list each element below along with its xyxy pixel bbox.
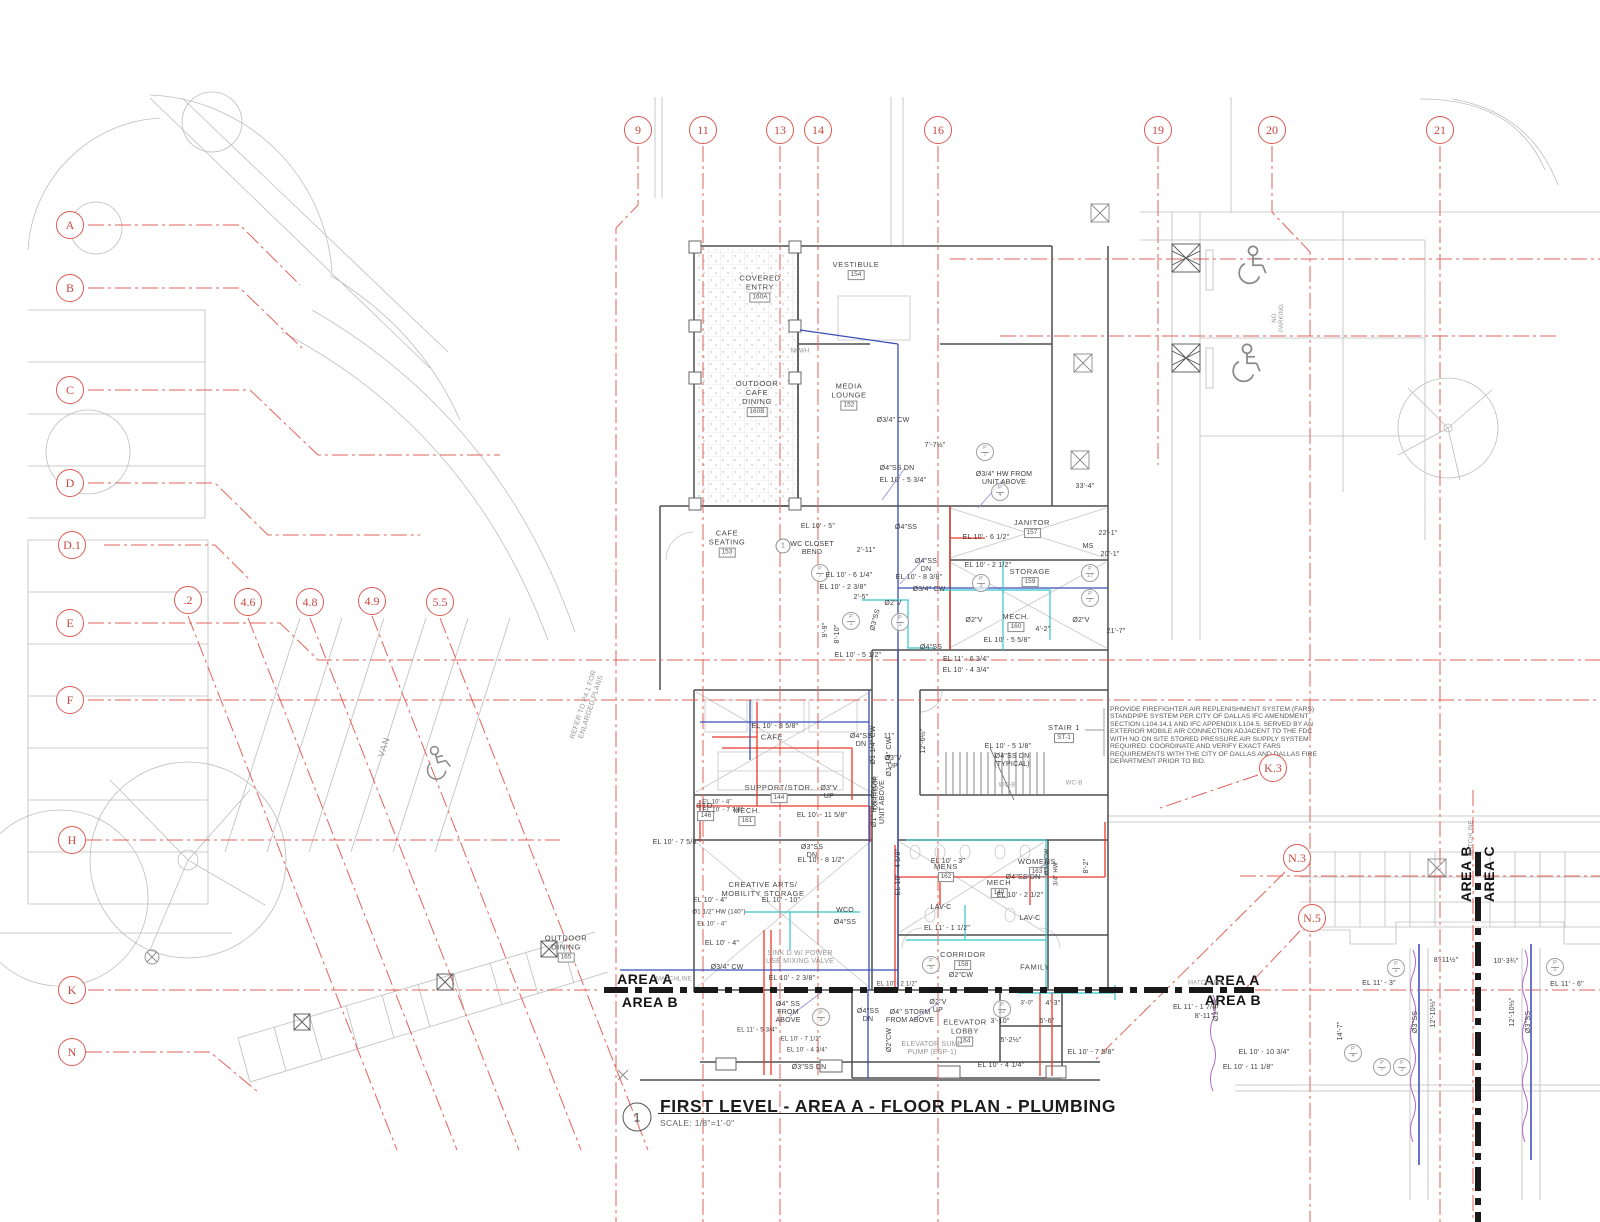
plan-annotation: 3'-0": [1021, 1001, 1034, 1008]
room-number-tag: 157: [1024, 528, 1041, 538]
room-name: COVERED ENTRY: [739, 274, 780, 292]
plan-annotation: 33'-4": [1075, 483, 1094, 491]
plan-annotation: 2'-11": [857, 547, 876, 555]
plan-annotation: Ø3"SS: [1412, 1011, 1420, 1033]
room-number-tag: 160: [1008, 622, 1025, 632]
room-name: SUPPORT/STOR.: [745, 783, 814, 792]
plan-annotation: Ø3/4" CW: [711, 964, 744, 972]
grid-bubble-19: 19: [1144, 116, 1172, 144]
plan-annotation: MS: [1083, 543, 1094, 551]
plumbing-fixture-tag: P1: [891, 613, 909, 631]
room-number-tag: 160A: [749, 293, 770, 303]
room-name: CAFE SEATING: [709, 529, 746, 547]
plan-annotation: EL 10' - 4 5/8": [895, 849, 903, 896]
plan-annotation: 14'-7": [1337, 1021, 1345, 1040]
plan-annotation: NFWH: [791, 349, 810, 356]
plan-annotation: Ø2"CW: [949, 972, 974, 980]
detail-number-bubble: 1: [623, 1103, 652, 1132]
plumbing-fixture-tag: P2: [1081, 589, 1099, 607]
room-label: OUTDOOR DINING165: [545, 934, 588, 963]
room-label: MEDIA LOUNGE152: [831, 382, 866, 411]
room-name: CORRIDOR: [940, 950, 986, 959]
plumbing-fixture-tag: P3: [1393, 1058, 1411, 1076]
plan-annotation: VAN: [376, 735, 392, 758]
labels-layer: AREA A AREA B AREA A AREA B AREA B AREA …: [0, 0, 1600, 1222]
keynote-bubble: 1: [776, 539, 791, 554]
plan-annotation: Ø3"SS: [869, 608, 883, 631]
plan-annotation: 4'-3": [1046, 1000, 1061, 1008]
plan-annotation: EL 11' - 1 1/2": [924, 925, 970, 933]
room-label: JANITOR157: [1014, 518, 1050, 538]
plan-annotation: Ø3/4"CW: [1045, 849, 1052, 876]
room-number-tag: 165: [558, 953, 575, 963]
plan-annotation: EL 10' - 4 3/4": [943, 667, 990, 675]
plumbing-fixture-tag: P7: [1373, 1058, 1391, 1076]
plan-annotation: 22'-1": [1098, 530, 1117, 538]
plan-annotation: EL 10' - 10": [762, 897, 800, 905]
room-name: MEDIA LOUNGE: [831, 382, 866, 400]
room-name: OUTDOOR CAFE DINING: [736, 379, 779, 406]
plan-annotation: 12'-10½": [1430, 998, 1438, 1027]
plan-annotation: 7'-7½": [925, 442, 946, 450]
grid-bubble-9: 9: [624, 116, 652, 144]
plan-annotation: 4'-2": [1036, 626, 1051, 634]
grid-bubble-D.1: D.1: [58, 531, 86, 559]
plan-annotation: 20'-1": [1100, 551, 1119, 559]
grid-bubble-20: 20: [1258, 116, 1286, 144]
plan-annotation: 6'-6": [1040, 1018, 1055, 1026]
plan-annotation: Ø3"SS: [1525, 1011, 1533, 1033]
plan-annotation: Ø3"SS DN: [792, 1064, 827, 1072]
area-marker-left-bottom: AREA B: [622, 994, 678, 1010]
room-name: MECH.: [1002, 612, 1029, 621]
plan-annotation: Ø2"V: [884, 600, 901, 608]
sheet-scale: SCALE: 1/8"=1'-0": [660, 1118, 734, 1128]
title-underline: [658, 1113, 1062, 1114]
plan-annotation: 8'-2": [1083, 859, 1091, 874]
plumbing-fixture-tag: P2: [1546, 958, 1564, 976]
plan-annotation: Ø3"V UP: [820, 785, 837, 801]
room-name: STORAGE: [1010, 567, 1051, 576]
plan-annotation: Ø4"SS DN: [915, 558, 937, 574]
plan-annotation: Ø2"V: [965, 617, 982, 625]
plan-annotation: EL 10' - 7 7/8": [703, 808, 743, 815]
plumbing-fixture-tag: P9: [812, 1008, 830, 1026]
grid-bubble-K: K: [58, 976, 86, 1004]
plan-annotation: 12'-6½": [920, 728, 928, 753]
plan-annotation: REFER TO P4.1 FOR ENLARGED PLANS: [569, 669, 606, 742]
plan-annotation: 3/4" HW: [1054, 862, 1061, 886]
room-label: CREATIVE ARTS/ MOBILITY STORAGE: [721, 880, 804, 898]
plan-annotation: MATCHLINE: [1188, 981, 1224, 988]
plan-annotation: 10'-3¾": [1493, 958, 1518, 966]
plan-annotation: EL 10' - 4": [697, 922, 727, 929]
plan-annotation: WCO: [836, 907, 854, 915]
grid-bubble-N: N: [58, 1038, 86, 1066]
plumbing-fixture-tag: P2: [1387, 959, 1405, 977]
plan-annotation: EL 10' - 10 3/4": [1239, 1049, 1290, 1057]
plan-annotation: Ø4" STORM FROM ABOVE: [886, 1009, 934, 1025]
plan-annotation: LAV-C: [1020, 915, 1041, 923]
plumbing-fixture-tag: P5: [922, 956, 940, 974]
plan-annotation: WC-B: [999, 783, 1016, 790]
plan-annotation: EL 10' - 5 5/8": [984, 637, 1031, 645]
plan-annotation: WC-B: [1066, 781, 1083, 788]
plan-annotation: EL 10' - 4 3/4": [787, 1048, 827, 1055]
room-number-tag: 159: [1022, 577, 1039, 587]
fixture-tag-text: 17: [1087, 574, 1093, 580]
grid-bubble-N.5: N.5: [1298, 904, 1326, 932]
plan-annotation: EL 10' - 2 3/8": [769, 975, 816, 983]
fixture-tag-text: 7: [1380, 1068, 1383, 1074]
plan-annotation: Ø4"SS DN: [1006, 874, 1041, 882]
grid-bubble-16: 16: [924, 116, 952, 144]
fixture-tag-text: 4: [1351, 1054, 1354, 1060]
plan-annotation: EL 11' - 3": [1362, 980, 1396, 988]
fixture-tag-text: 4: [998, 493, 1001, 499]
fixture-tag-text: 7: [818, 574, 821, 580]
plan-annotation: Ø4"SS DN: [880, 465, 915, 473]
room-name: CREATIVE ARTS/ MOBILITY STORAGE: [721, 880, 804, 898]
plan-annotation: 8'-11½": [1434, 957, 1459, 965]
plan-annotation: CORRIDOR: [874, 776, 881, 810]
plan-annotation: EL 10' - 11 5/8": [797, 812, 847, 820]
room-name: ELEVATOR LOBBY: [943, 1018, 987, 1036]
room-label: STORAGE159: [1010, 567, 1051, 587]
room-name: FAMILY: [1020, 963, 1050, 972]
plan-annotation: EL 10' - 6 1/4": [826, 572, 873, 580]
grid-bubble-4.8: 4.8: [296, 588, 324, 616]
room-name: JANITOR: [1014, 518, 1050, 527]
plan-annotation: EL 10' - 5 1/8": [985, 743, 1032, 751]
plan-annotation: Ø3"SS: [1213, 999, 1221, 1021]
plan-annotation: EL 10' - 7 1/2": [781, 1037, 821, 1044]
plan-annotation: EL 10' - 4": [702, 800, 732, 807]
room-number-tag: 154: [848, 270, 865, 280]
plan-annotation: LAV-C: [931, 904, 952, 912]
plan-annotation: EL 10' - 8 5/8": [752, 723, 799, 731]
room-number-tag: 158: [955, 960, 972, 970]
room-name: VESTIBULE: [833, 260, 880, 269]
fixture-tag-text: 9: [819, 1018, 822, 1024]
room-number-tag: 161: [739, 816, 756, 826]
plan-annotation: MATCHLINE: [1469, 820, 1476, 856]
room-label: COVERED ENTRY160A: [739, 274, 780, 303]
plan-annotation: EL 10' - 2 1/2": [965, 562, 1012, 570]
plan-annotation: EL 10' - 4": [705, 940, 739, 948]
plan-annotation: 5'-2½": [1001, 1037, 1022, 1045]
grid-bubble-H: H: [58, 826, 86, 854]
room-label: FAMILY: [1020, 963, 1050, 972]
room-name: CAFE: [761, 733, 783, 742]
plan-annotation: EL 10' - 2 1/2": [997, 892, 1044, 900]
fixture-tag-text: 2: [1088, 599, 1091, 605]
grid-bubble-21: 21: [1426, 116, 1454, 144]
plan-annotation: EL 10' - 4 1/4": [978, 1062, 1025, 1070]
plan-annotation: 9'-9": [822, 623, 830, 638]
room-number-tag: 144: [771, 793, 788, 803]
room-name: OUTDOOR DINING: [545, 934, 588, 952]
grid-bubble-N.3: N.3: [1283, 844, 1311, 872]
plan-annotation: Ø1 1/2" HW (140°): [692, 910, 745, 917]
plan-annotation: EL 11' - 6": [1550, 981, 1584, 989]
plan-annotation: EL 10' - 5 1/2": [835, 652, 882, 660]
plan-annotation: 21'-7": [1106, 628, 1125, 636]
grid-bubble-K.3: K.3: [1259, 754, 1287, 782]
plan-annotation: Ø4"SS: [834, 919, 856, 927]
room-label: VESTIBULE154: [833, 260, 880, 280]
plan-annotation: Ø2"V: [1072, 617, 1089, 625]
plan-annotation: EL 11' - 6 3/4": [943, 656, 989, 664]
plan-annotation: Ø1 1/4" CW: [870, 725, 878, 764]
room-label: CORRIDOR158: [940, 950, 986, 970]
plumbing-fixture-tag: P3: [972, 574, 990, 592]
plan-annotation: MATCHLINE: [656, 977, 692, 984]
plan-annotation: EL 10' - 7 5/8": [653, 839, 700, 847]
plan-annotation: Ø4"SS DN: [857, 1008, 879, 1024]
fixture-tag-text: 3: [1400, 1068, 1403, 1074]
plan-annotation: EL 10' - 7 5/8": [1068, 1049, 1115, 1057]
grid-bubble-F: F: [56, 686, 84, 714]
plan-annotation: Ø4"SS DN (TYPICAL): [994, 753, 1030, 769]
fixture-tag-text: 2: [1394, 969, 1397, 975]
area-marker-vertical-c: AREA C: [1481, 846, 1497, 902]
plumbing-fixture-tag: P7: [976, 443, 994, 461]
grid-bubble-E: E: [56, 609, 84, 637]
plan-annotation: EL 10' - 5 3/4": [880, 477, 927, 485]
room-number-tag: 152: [841, 401, 858, 411]
grid-bubble-D: D: [56, 469, 84, 497]
floor-plan-sheet: AREA A AREA B AREA A AREA B AREA B AREA …: [0, 0, 1600, 1222]
plan-annotation: 3'-10": [990, 1018, 1009, 1026]
plan-annotation: EL 10' - 6 1/2": [963, 534, 1010, 542]
fixture-tag-text: 2: [1553, 968, 1556, 974]
plumbing-fixture-tag: P1: [842, 612, 860, 630]
fars-note: PROVIDE FIREFIGHTER AIR REPLENISHMENT SY…: [1110, 706, 1318, 766]
plan-annotation: EL 10' - 5": [801, 523, 835, 531]
plan-annotation: 8'-10": [834, 624, 842, 643]
grid-bubble-A: A: [56, 211, 84, 239]
plan-annotation: NO PARKING: [1272, 304, 1286, 332]
plan-annotation: Ø1 1/4" CW: [886, 737, 894, 776]
plan-annotation: EL 11' - 5 3/4": [737, 1028, 777, 1035]
fixture-tag-text: 3: [979, 584, 982, 590]
plan-annotation: 8'-11": [1195, 1013, 1214, 1021]
fixture-tag-text: 1: [898, 623, 901, 629]
grid-bubble-14: 14: [804, 116, 832, 144]
plan-annotation: Ø4"SS: [895, 524, 917, 532]
plumbing-fixture-tag: P22: [993, 1000, 1011, 1018]
plan-annotation: Ø3/4" CW: [913, 586, 946, 594]
fixture-tag-text: 1: [849, 622, 852, 628]
grid-bubble-13: 13: [766, 116, 794, 144]
plan-annotation: WC CLOSET BEND: [790, 541, 833, 557]
grid-bubble-.2: .2: [174, 586, 202, 614]
grid-bubble-11: 11: [689, 116, 717, 144]
plan-annotation: Ø4"SS: [920, 644, 942, 652]
grid-bubble-C: C: [56, 376, 84, 404]
room-label: CAFE: [761, 733, 783, 742]
plan-annotation: Ø3/4" HW FROM UNIT ABOVE: [976, 471, 1032, 487]
plan-annotation: Ø3/4" CW: [877, 417, 910, 425]
grid-bubble-4.9: 4.9: [358, 587, 386, 615]
room-label: MECH.160: [1002, 612, 1029, 632]
room-number-tag: ST-1: [1054, 733, 1074, 743]
plan-annotation: 2'-5": [854, 594, 869, 602]
grid-bubble-5.5: 5.5: [426, 588, 454, 616]
plan-annotation: Ø2"V UP: [929, 999, 946, 1015]
plan-annotation: EL 10' - 4": [693, 897, 727, 905]
plan-annotation: Ø4" SS FROM ABOVE: [775, 1001, 800, 1025]
room-name: STAIR 1: [1048, 723, 1080, 732]
room-label: STAIR 1ST-1: [1048, 723, 1080, 743]
room-number-tag: 160B: [746, 407, 767, 417]
room-label: CAFE SEATING153: [709, 529, 746, 558]
plan-annotation: Ø4"SS DN: [850, 733, 872, 749]
plan-annotation: EL 10' - 8 3/8": [896, 574, 943, 582]
fixture-tag-text: 22: [999, 1010, 1005, 1016]
room-number-tag: 162: [938, 872, 955, 882]
plan-annotation: SINK D W/ POWER USE MIXING VALVE: [766, 950, 834, 966]
plan-annotation: EL 10' - 11 1/8": [1223, 1064, 1273, 1072]
grid-bubble-4.6: 4.6: [234, 588, 262, 616]
room-number-tag: 153: [719, 548, 736, 558]
plan-annotation: EL 10' - 2 1/2": [877, 982, 917, 989]
fixture-tag-text: 7: [983, 453, 986, 459]
plumbing-fixture-tag: P4: [1344, 1044, 1362, 1062]
plan-annotation: ELEVATOR SUMP PUMP (ESP-1): [902, 1041, 963, 1057]
fixture-tag-text: 5: [929, 966, 932, 972]
grid-bubble-B: B: [56, 274, 84, 302]
plan-annotation: Ø2"CW: [886, 1028, 894, 1053]
plan-annotation: EL 10' - 8 1/2": [798, 857, 845, 865]
room-label: SUPPORT/STOR.144: [745, 783, 814, 803]
plumbing-fixture-tag: P17: [1081, 564, 1099, 582]
plan-annotation: 12'-10½": [1509, 997, 1517, 1026]
room-label: OUTDOOR CAFE DINING160B: [736, 379, 779, 417]
plan-annotation: EL 10' - 2 3/8": [820, 584, 867, 592]
plan-annotation: EL 10' - 3": [931, 858, 965, 866]
